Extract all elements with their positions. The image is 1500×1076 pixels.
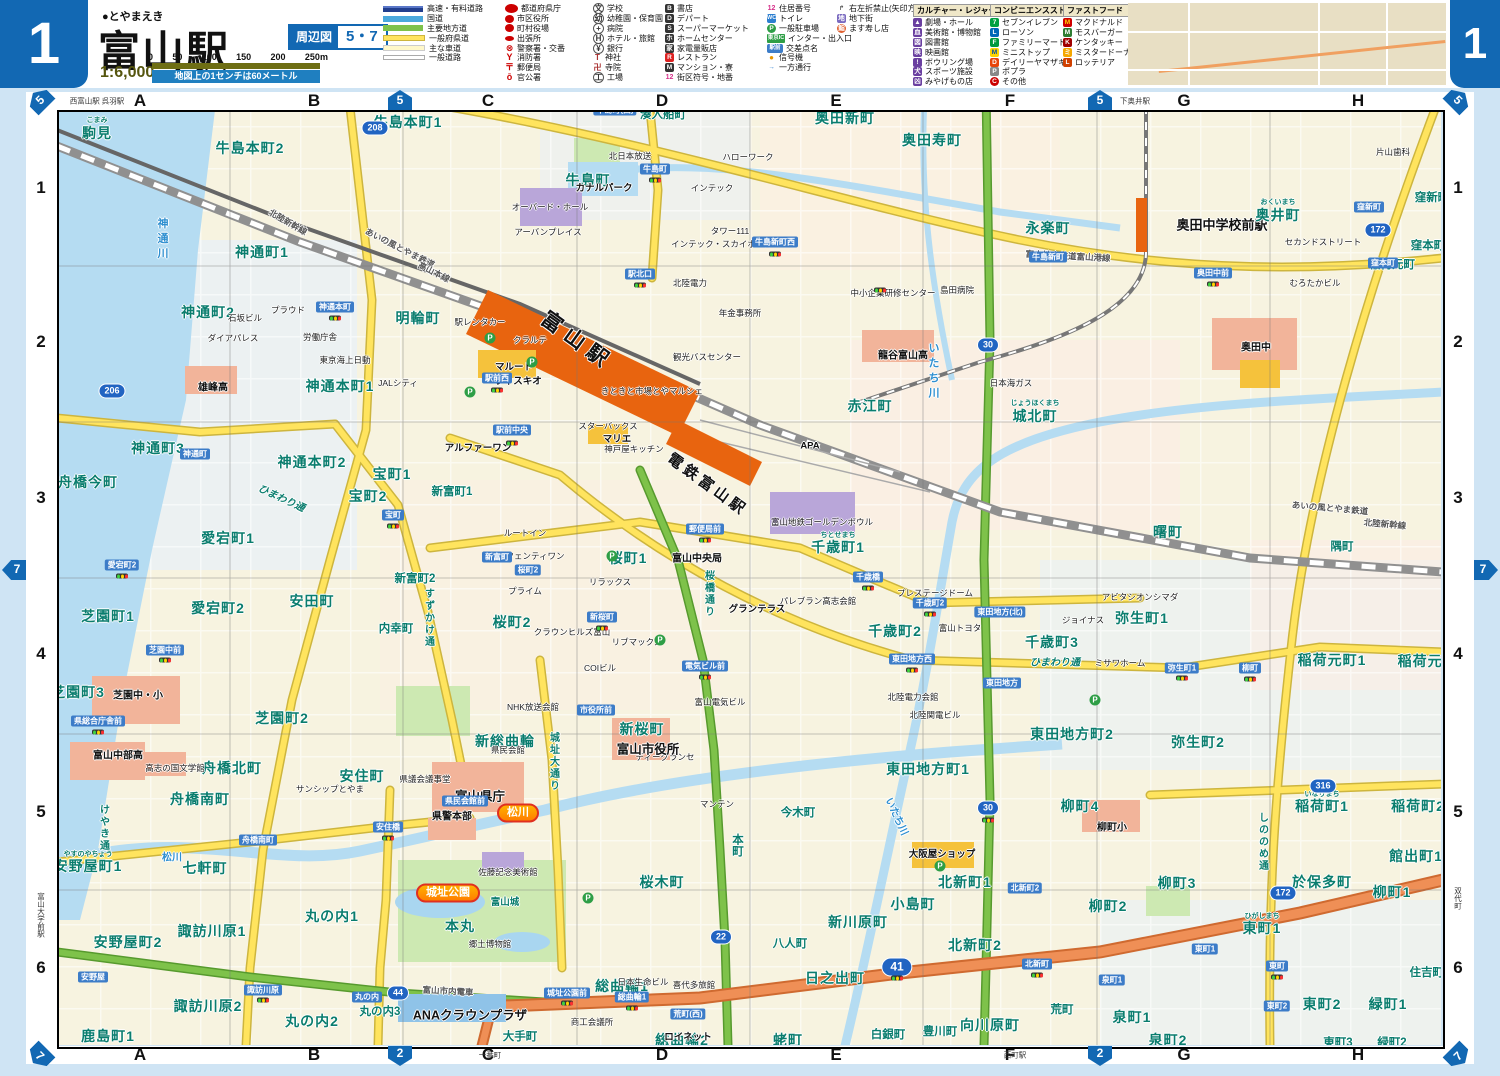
building-label: 富山地鉄ゴールデンボウル: [771, 516, 873, 528]
library-icon: 図: [913, 38, 922, 47]
district-label: 窪新町: [1415, 189, 1441, 205]
building-label: 観光バスセンター: [673, 351, 741, 363]
legend-item: ō官公署: [505, 73, 565, 83]
grid-col-B: B: [308, 1045, 320, 1065]
district-label: 窪本町: [1411, 237, 1441, 253]
district-label: 荒町: [1051, 1001, 1074, 1017]
main-icon: [383, 45, 425, 51]
district-label: 稲荷元町1: [1298, 650, 1367, 670]
district-label: 蛯町: [773, 1030, 803, 1045]
building-label: カナルパーク: [575, 180, 632, 194]
intersection-label: 舟橋南町: [239, 835, 277, 846]
intersection-label: 電気ビル前: [682, 661, 728, 672]
intersection-label: 安住橋: [373, 822, 403, 833]
scale-tick: 200: [271, 52, 286, 62]
route-shield: 172: [1364, 223, 1391, 238]
building-label: 県民会館: [491, 744, 525, 756]
district-label: 千歳町1: [811, 537, 865, 557]
district-label: 曙町: [1153, 522, 1183, 542]
traffic-signal-icon: [1176, 676, 1188, 681]
intersection-label: 県総合庁舎前: [71, 716, 125, 727]
facility-label: 芝園中・小: [113, 687, 163, 702]
route-shield: 41: [881, 958, 912, 977]
district-label: 愛宕町2: [191, 598, 245, 618]
edge-station-label: 富山大学前駅: [36, 893, 47, 938]
intersection-label: 駅北口: [625, 269, 655, 280]
district-label: 明輪町: [396, 308, 441, 328]
traffic-signal-icon: [626, 1006, 638, 1011]
district-label: 千歳町2: [868, 621, 922, 641]
district-label: 宝町2: [349, 486, 388, 506]
route-shield: 206: [98, 384, 125, 399]
intersection-label: 安野屋: [78, 972, 108, 983]
grid-row-6: 6: [36, 958, 45, 978]
intersection-label: 北新町: [1022, 959, 1052, 970]
district-label: 住吉町1: [1410, 964, 1441, 980]
town-office-icon: [505, 24, 514, 32]
traffic-signal-icon: [862, 586, 874, 591]
traffic-signal-icon: [561, 1001, 573, 1006]
parking-icon: P: [935, 861, 946, 872]
district-label: 北新町1: [938, 872, 992, 892]
tourist-spot-label: 城址公園: [416, 884, 480, 903]
district-label: 奥田新町: [815, 110, 875, 128]
facility-label: 奥田中: [1241, 339, 1271, 354]
furigana-label: じょうほくまち: [1011, 398, 1060, 408]
district-label: 東町2: [1303, 994, 1342, 1014]
building-label: 労働庁舎: [303, 331, 337, 343]
district-label: 八人町: [773, 935, 808, 951]
mansion-icon: M: [665, 63, 674, 72]
intersection-label: 千歳橋: [853, 572, 883, 583]
building-label: むろたかビル: [1289, 277, 1340, 289]
district-label: 丸の内3: [360, 1003, 401, 1019]
district-label: 神通本町2: [278, 452, 347, 472]
fire-icon: Y: [505, 53, 514, 62]
scale-bar: [152, 63, 320, 69]
building-label: 日本海ガス: [990, 377, 1033, 389]
mos-icon: M: [1063, 28, 1072, 37]
building-label: タワー111: [711, 225, 749, 237]
building-label: ロイネット: [664, 1029, 712, 1043]
route-shield: 30: [977, 801, 999, 816]
traffic-signal-icon: [1244, 677, 1256, 682]
legend-item-label: 街区符号・地番: [677, 72, 733, 83]
lotteria-icon: L: [1063, 58, 1072, 67]
nat-icon: [383, 16, 423, 22]
furigana-label: ちとせまち: [821, 530, 856, 540]
map-label-layer: 富山駅電鉄富山駅奥田中学校前駅駒見こまみ牛島本町1牛島本町2牛島町湊入船町奥田新…: [57, 110, 1441, 1045]
district-label: 愛宕町1: [201, 528, 255, 548]
intersection-label: 丸の内: [352, 992, 382, 1003]
intersection-label: 北新町2: [1008, 883, 1042, 894]
intersection-label: 郵便局前: [686, 524, 724, 535]
building-label: 高志の国文学館: [145, 762, 205, 774]
grid-col-A: A: [134, 1045, 146, 1065]
district-label: 東田地方町1: [886, 759, 970, 779]
grid-row-5: 5: [36, 802, 45, 822]
grid-col-H: H: [1352, 91, 1364, 111]
building-label: 北陸関電ビル: [909, 709, 960, 721]
district-label: 本丸: [445, 916, 475, 936]
building-label: NHK放送会館: [507, 701, 559, 713]
theater-icon: ▲: [913, 18, 922, 27]
restaurant-icon: R: [665, 53, 674, 62]
seven-icon: 7: [990, 18, 999, 27]
furigana-label: おくいまち: [1261, 197, 1296, 207]
railway-label: 北陸新幹線: [267, 206, 310, 238]
building-label: ダイアパレス: [208, 332, 259, 344]
district-label: 鹿島町1: [81, 1026, 135, 1045]
district-label: 牛島本町2: [216, 138, 285, 158]
grid-col-G: G: [1177, 91, 1190, 111]
book-icon: B: [665, 4, 674, 13]
district-label: 赤江町: [848, 396, 893, 416]
district-label: 隅町: [1331, 538, 1354, 554]
overview-map-label: 周辺図: [290, 26, 338, 48]
legend-column: B書店DデパートSスーパーマーケットホホームセンター家家電量販店RレストランMマ…: [665, 4, 749, 82]
building-label: 東京海上日動: [319, 354, 370, 366]
building-label: 年金事務所: [719, 307, 762, 319]
street-label: 城址大通り: [546, 732, 561, 792]
intersection-label: 城址公園前: [544, 988, 590, 999]
district-label: 白銀町: [871, 1026, 906, 1042]
building-label: 富山トヨタ: [939, 622, 982, 634]
oneway-icon: →: [767, 63, 776, 72]
traffic-signal-icon: [159, 658, 171, 663]
facility-label: ANAクラウンプラザ: [413, 1005, 527, 1024]
underground-icon: 地: [837, 14, 846, 23]
legend-item-label: その他: [1002, 76, 1026, 87]
pref-office-icon: [505, 4, 518, 13]
edge-station-label: 下奥井駅: [1120, 96, 1150, 107]
building-label: 北陸電力: [673, 277, 707, 289]
grid-row-4: 4: [1453, 644, 1462, 664]
district-label: 湊入船町: [640, 110, 686, 122]
legend-item-label: みやげもの店: [925, 76, 973, 87]
district-label: 本町: [729, 834, 745, 857]
building-label: リラックス: [589, 576, 631, 588]
district-label: 城北町: [1013, 406, 1058, 426]
water-label: いたち川: [925, 342, 941, 402]
traffic-signal-icon: [116, 574, 128, 579]
traffic-signal-icon: [92, 730, 104, 735]
street-label: 桜橋通り: [701, 570, 716, 618]
intersection-label: 新富町: [482, 552, 512, 563]
district-label: 新富町2: [395, 570, 436, 586]
grid-col-E: E: [830, 1045, 841, 1065]
intersection-label: 牛島新町西: [752, 237, 798, 248]
dept-icon: D: [665, 14, 674, 23]
city-office-icon: [505, 15, 514, 23]
scale-tick: 150: [236, 52, 251, 62]
district-label: 舟橋今町: [58, 472, 118, 492]
legend-item: Hホテル・旅館: [593, 33, 663, 43]
district-label: 新桜町: [620, 719, 665, 739]
legend-item-label: 一方通行: [779, 62, 811, 73]
traffic-signal-icon: [874, 288, 886, 293]
museum-icon: 血: [913, 28, 922, 37]
police-icon: ⊗: [505, 44, 514, 53]
district-label: 弥生町1: [1115, 608, 1169, 628]
intersection-label: 桜町2: [515, 565, 541, 576]
building-label: ハローワーク: [722, 151, 773, 163]
gov-office-icon: ō: [505, 73, 514, 82]
railway-label: 北陸新幹線: [1363, 516, 1406, 532]
block-num-icon: 12: [665, 73, 674, 82]
intersection-label: 新桜町: [587, 612, 617, 623]
traffic-signal-icon: [891, 976, 903, 981]
intersection-label: 神通町: [180, 449, 210, 460]
overview-map-pages: 5・7: [338, 26, 386, 48]
souvenir-icon: 凶: [913, 77, 922, 86]
grid-col-E: E: [830, 91, 841, 111]
intersection-label: 県民会館前: [442, 796, 488, 807]
district-label: 永楽町: [1026, 218, 1071, 238]
house-num-icon: 12: [767, 4, 776, 13]
intersection-label: 駅前西: [482, 373, 512, 384]
exp-icon: [383, 6, 423, 12]
popl ar-icon: P: [990, 67, 999, 76]
facility-label: 龍谷富山高: [878, 347, 928, 362]
legend-item: 幼幼稚園・保育園: [593, 14, 663, 24]
district-label: 舟橋北町: [202, 758, 262, 778]
grid-col-G: G: [1177, 1045, 1190, 1065]
grid-col-D: D: [656, 1045, 668, 1065]
building-label: アルファーワン: [445, 440, 511, 454]
building-label: APA: [800, 441, 819, 452]
legend-column: 文学校幼幼稚園・保育園+病院Hホテル・旅館¥銀行T神社卍寺院工工場: [593, 4, 663, 82]
gen-icon: [383, 35, 425, 41]
facility-label: 雄峰高: [198, 379, 228, 394]
railway-label: あいの風とやま鉄道: [1291, 499, 1368, 518]
traffic-signal-icon: [596, 626, 608, 631]
intersection-label: 宝町: [382, 510, 404, 521]
route-shield: 44: [387, 986, 409, 1001]
pref-icon: [383, 25, 423, 31]
facility-label: 富山中央局: [672, 550, 722, 565]
building-label: 神戸屋キッチン: [604, 443, 664, 455]
district-label: 緑町2: [1377, 1034, 1406, 1045]
building-label: ツェンティワン: [506, 550, 565, 562]
traffic-signal-icon: [491, 388, 503, 393]
tourist-spot-label: 松川: [497, 804, 539, 823]
district-label: 向川原町: [960, 1015, 1020, 1035]
page-number-tab-left: 1: [0, 0, 88, 88]
intersection-label: 東田地方(北): [974, 607, 1025, 618]
building-label: 石坂ビル: [228, 312, 262, 324]
traffic-signal-icon: [257, 998, 269, 1003]
intersection-label: 牛島町(西): [593, 110, 636, 116]
grid-strip-right: [1443, 92, 1474, 1064]
scale-tick: 250m: [305, 52, 328, 62]
building-label: COIビル: [584, 662, 616, 674]
grid-row-2: 2: [36, 332, 45, 352]
scale-ticks: 050100150200250m: [148, 52, 328, 62]
street-label: すずかけ通: [421, 588, 436, 648]
district-label: 七軒町: [183, 858, 228, 878]
building-label: ルートイン: [504, 527, 547, 539]
district-label: 桜木町: [640, 872, 685, 892]
district-label: 芝園町2: [255, 708, 309, 728]
grid-row-3: 3: [36, 488, 45, 508]
district-label: 柳町3: [1158, 873, 1197, 893]
legend-item: 凶みやげもの店: [913, 77, 1001, 87]
district-label: 柳町4: [1061, 796, 1100, 816]
grid-row-3: 3: [1453, 488, 1462, 508]
district-label: 安野屋町1: [57, 856, 122, 876]
parking-icon: P: [767, 24, 776, 33]
intersection-label: 奥田中前: [1194, 268, 1232, 279]
traffic-signal-icon: [649, 178, 661, 183]
station-label: 奥田中学校前駅: [1176, 215, 1267, 234]
building-label: 中小企業研修センター: [850, 287, 935, 299]
intersection-label: 諏訪川原: [244, 985, 282, 996]
traffic-signal-icon: [924, 612, 936, 617]
legend-column: 都道府県庁市区役所町村役場出張所⊗警察署・交番Y消防署〒郵便局ō官公署: [505, 4, 565, 82]
traffic-signal-icon: [506, 441, 518, 446]
district-label: 豊川町: [923, 1023, 958, 1039]
legend-item-label: ます寿し店: [849, 23, 889, 34]
ministop-icon: M: [990, 48, 999, 57]
building-label: 北日本放送: [609, 150, 652, 162]
post-icon: 〒: [505, 63, 514, 72]
traffic-signal-icon: [387, 524, 399, 529]
building-label: オーバード・ホール: [512, 201, 588, 213]
building-label: JALシティ: [378, 377, 418, 389]
grid-row-5: 5: [1453, 802, 1462, 822]
facility-label: 富山中部高: [93, 747, 143, 762]
scale-tick: 100: [202, 52, 217, 62]
overview-map-badge: 周辺図 5・7: [288, 24, 388, 50]
mcdonalds-icon: M: [1063, 18, 1072, 27]
daily-icon: D: [990, 58, 999, 67]
no-turn-icon: ↱: [837, 4, 846, 13]
district-label: 日之出町: [805, 968, 865, 988]
scale-tick: 0: [148, 52, 153, 62]
district-label: 稲荷元町2: [1398, 651, 1441, 671]
electronics-icon: 家: [665, 44, 674, 53]
legend-item-label: 工場: [607, 72, 623, 83]
shrine-icon: T: [593, 53, 602, 62]
facility-label: 柳町小: [1097, 819, 1127, 834]
district-label: 新川原町: [828, 912, 888, 932]
route-shield: 22: [710, 930, 732, 945]
district-label: 桜町2: [493, 612, 532, 632]
intersection-label: 荒町(西): [670, 1009, 705, 1020]
intersection-label: 愛宕町2: [105, 560, 139, 571]
building-label: ジョイナス: [1062, 614, 1104, 626]
legend-item: 工工場: [593, 73, 663, 83]
grid-row-4: 4: [36, 644, 45, 664]
street-label: ひまわり通: [1030, 654, 1080, 669]
district-label: 神通町2: [181, 302, 235, 322]
railway-label: 富山市内電車: [422, 984, 474, 999]
familymart-icon: F: [990, 38, 999, 47]
district-label: 富山城: [491, 894, 520, 908]
district-label: 奥井町: [1256, 205, 1301, 225]
legend-item: 12街区符号・地番: [665, 73, 749, 83]
district-label: 芝園町3: [57, 682, 105, 702]
street-label: しののめ通: [1255, 812, 1270, 872]
traffic-signal-icon: [1271, 975, 1283, 980]
district-label: 稲荷町2: [1391, 796, 1441, 816]
building-label: プライム: [508, 585, 542, 597]
building-label: 富山電気ビル: [694, 696, 745, 708]
edge-station-label: 西富山駅 呉羽駅: [70, 96, 125, 107]
water-label: 松川: [162, 849, 182, 864]
district-label: 泉町2: [1149, 1030, 1188, 1045]
building-label: 大阪屋ショップ: [909, 846, 976, 860]
district-label: 緑町1: [1369, 994, 1408, 1014]
parking-icon: P: [583, 893, 594, 904]
super-icon: S: [665, 24, 674, 33]
grid-row-2: 2: [1453, 332, 1462, 352]
parking-icon: P: [1090, 695, 1101, 706]
building-label: マンテン: [700, 798, 734, 810]
district-label: 稲荷町1: [1295, 796, 1349, 816]
district-label: 神通本町1: [306, 376, 375, 396]
grid-col-C: C: [482, 91, 494, 111]
map-scale: 1:6,000: [100, 64, 154, 82]
traffic-signal-icon: [699, 538, 711, 543]
grid-col-B: B: [308, 91, 320, 111]
toilet-icon: WC: [767, 14, 776, 23]
intersection-label: 千歳町2: [913, 598, 947, 609]
intersection-label: 窪本町: [1368, 258, 1398, 269]
parking-icon: P: [485, 333, 496, 344]
district-label: 丸の内2: [285, 1011, 339, 1031]
district-label: 大手町: [503, 1028, 538, 1044]
building-label: プラウド: [271, 304, 305, 316]
intersection-label: 神通本町: [316, 302, 354, 313]
homecenter-icon: ホ: [665, 34, 674, 43]
intersection-label: 牛島新町: [1029, 252, 1067, 263]
traffic-signal-icon: [1207, 282, 1219, 287]
building-label: アビタシオンシマダ: [1102, 591, 1179, 603]
building-label: 片山歯科: [1376, 146, 1410, 158]
intersection-label: 東町2: [1264, 1001, 1290, 1012]
intersection-label: 弥生町1: [1165, 663, 1199, 674]
street-label: ひまわり通: [256, 480, 308, 515]
grid-col-H: H: [1352, 1045, 1364, 1065]
furigana-label: こまみ: [87, 115, 108, 125]
ord-icon: [383, 55, 425, 60]
legend-item: T神社: [593, 53, 663, 63]
district-label: 於保多町: [1292, 872, 1352, 892]
traffic-signal-icon: [906, 668, 918, 673]
district-label: 東町1: [1243, 918, 1282, 938]
parking-icon: P: [655, 635, 666, 646]
bowling-icon: !: [913, 58, 922, 67]
district-label: 内幸町: [379, 620, 414, 636]
edge-station-label: 一番町: [479, 1050, 502, 1061]
cinema-icon: 映: [913, 48, 922, 57]
route-shield: 172: [1269, 886, 1296, 901]
parking-icon: P: [607, 551, 618, 562]
intersection-label: 東田地方西: [889, 654, 935, 665]
grid-row-1: 1: [1453, 178, 1462, 198]
intersection-label: 東町1: [1192, 944, 1218, 955]
building-label: アーバンプレイス: [514, 226, 581, 238]
water-label: いたち川: [883, 795, 913, 838]
sports-icon: 犬: [913, 67, 922, 76]
district-label: 駒見: [82, 123, 112, 143]
legend-column: 高速・有料道路国道主要地方道一般府県道主な車道一般道路: [383, 4, 483, 63]
district-label: 千歳町3: [1025, 632, 1079, 652]
district-label: 奥田寿町: [902, 130, 962, 150]
building-label: 島田病院: [940, 284, 974, 296]
